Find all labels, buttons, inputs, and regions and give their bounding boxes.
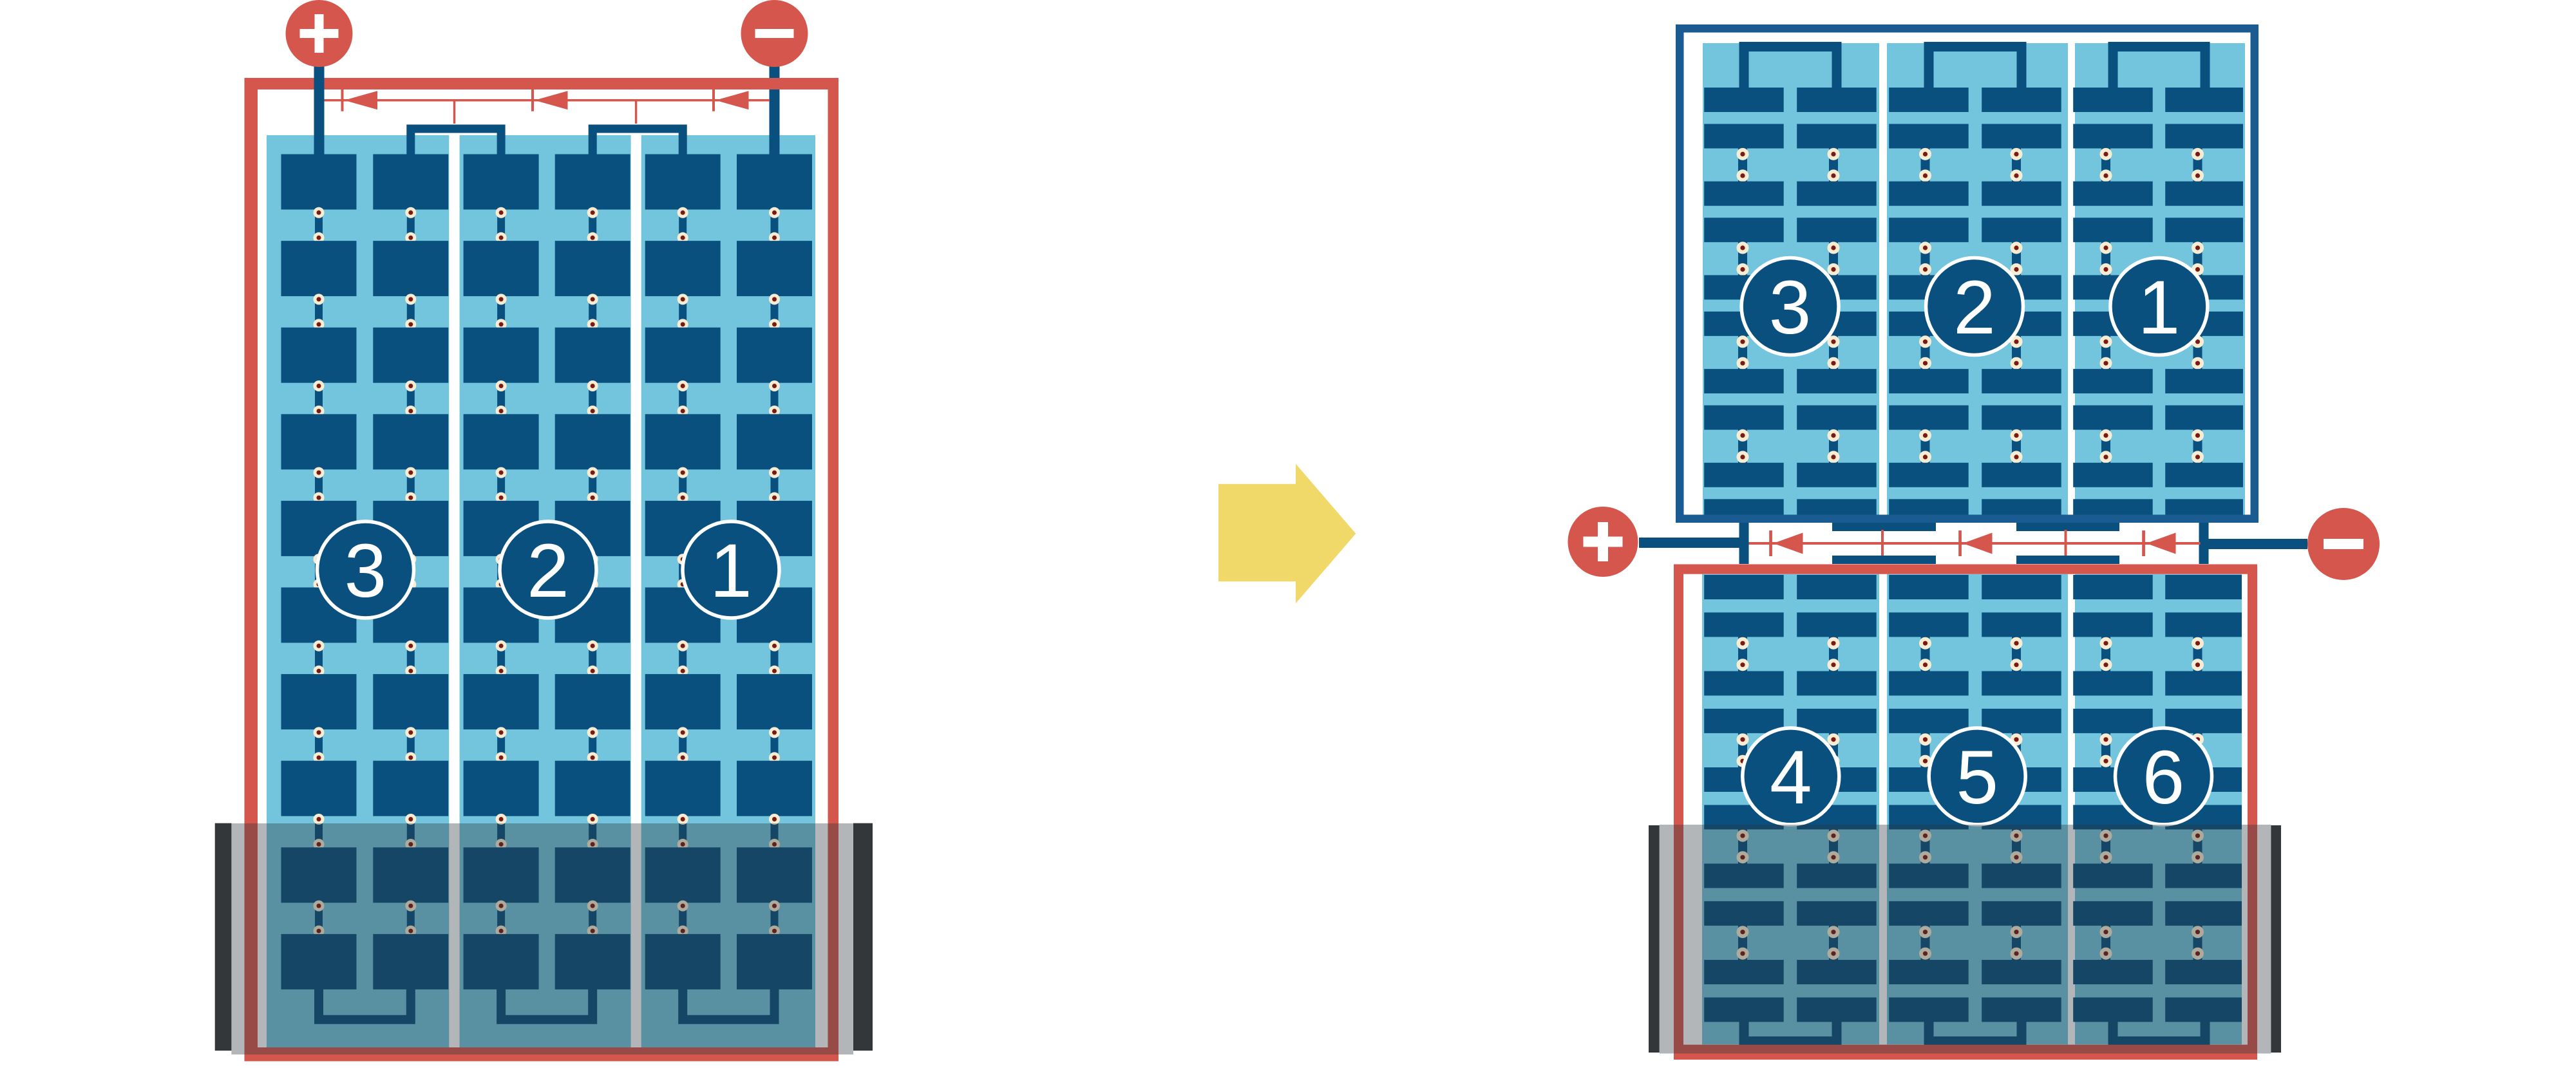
svg-text:1: 1 [710,529,752,614]
svg-text:2: 2 [1953,265,1996,350]
svg-text:3: 3 [1769,265,1812,350]
svg-text:6: 6 [2143,735,2185,820]
svg-text:2: 2 [527,529,569,614]
svg-text:1: 1 [2138,265,2181,350]
svg-text:4: 4 [1770,735,1812,820]
svg-text:5: 5 [1956,735,1998,820]
svg-text:3: 3 [345,529,387,614]
